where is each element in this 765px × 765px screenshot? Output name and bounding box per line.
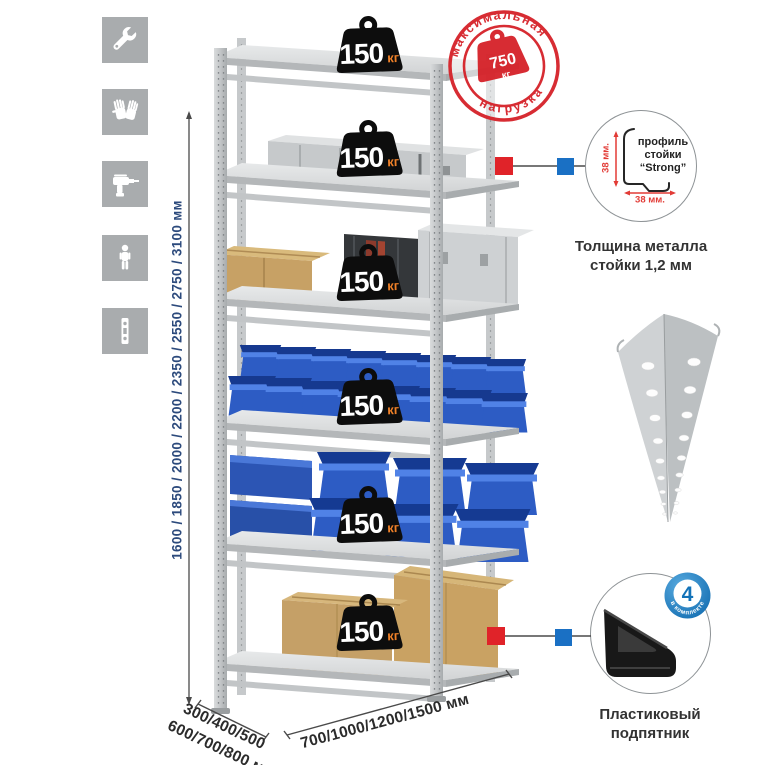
shelf-load-unit: кг [387,278,399,293]
shelf-load-value: 150 [339,38,384,71]
plastic-foot-illustration [604,610,676,677]
shelf-load-value: 150 [339,142,384,175]
foot-callout-connector [487,627,591,646]
shelf-load-value: 150 [339,616,384,649]
shelf4-weight-badge: 150кг [320,366,418,433]
profile-caption-line1: Толщина металла [565,237,717,256]
profile-dim-vertical: 38 мм. [601,143,612,173]
quantity-badge: 4 в комплекте [664,572,711,619]
shelf-load-unit: кг [387,520,399,535]
height-dimensions-label: 1600 / 1850 / 2000 / 2200 / 2350 / 2550 … [170,200,185,560]
shelf2-weight-badge: 150кг [320,118,418,185]
profile-label-line1: профиль [637,136,689,149]
shelf-load-value: 150 [339,508,384,541]
shelf-load-value: 150 [339,390,384,423]
profile-dim-horizontal: 38 мм. [635,195,665,206]
profile-label: профиль стойки “Strong” [637,136,689,175]
height-dimension-line [186,111,192,705]
shelf6-weight-badge: 150кг [320,592,418,659]
corner-angle-profile [618,314,720,522]
product-infographic: 150кг 150кг 150кг 150кг 150кг 150кг макс… [0,0,765,765]
foot-caption-line2: подпятник [570,724,730,743]
profile-label-line2: стойки [637,149,689,162]
foot-caption-line1: Пластиковый [570,705,730,724]
shelf-load-value: 150 [339,266,384,299]
shelf-load-unit: кг [387,402,399,417]
profile-callout-connector [495,157,585,175]
shelf-load-unit: кг [387,628,399,643]
shelf1-weight-badge: 150кг [320,14,418,81]
foot-caption: Пластиковый подпятник [570,705,730,743]
profile-label-line3: “Strong” [637,162,689,175]
shelf-load-unit: кг [387,154,399,169]
quantity-value: 4 [682,583,694,606]
profile-caption: Толщина металла стойки 1,2 мм [565,237,717,275]
profile-caption-line2: стойки 1,2 мм [565,256,717,275]
shelf-load-unit: кг [387,50,399,65]
shelf3-weight-badge: 150кг [320,242,418,309]
shelf5-weight-badge: 150кг [320,484,418,551]
